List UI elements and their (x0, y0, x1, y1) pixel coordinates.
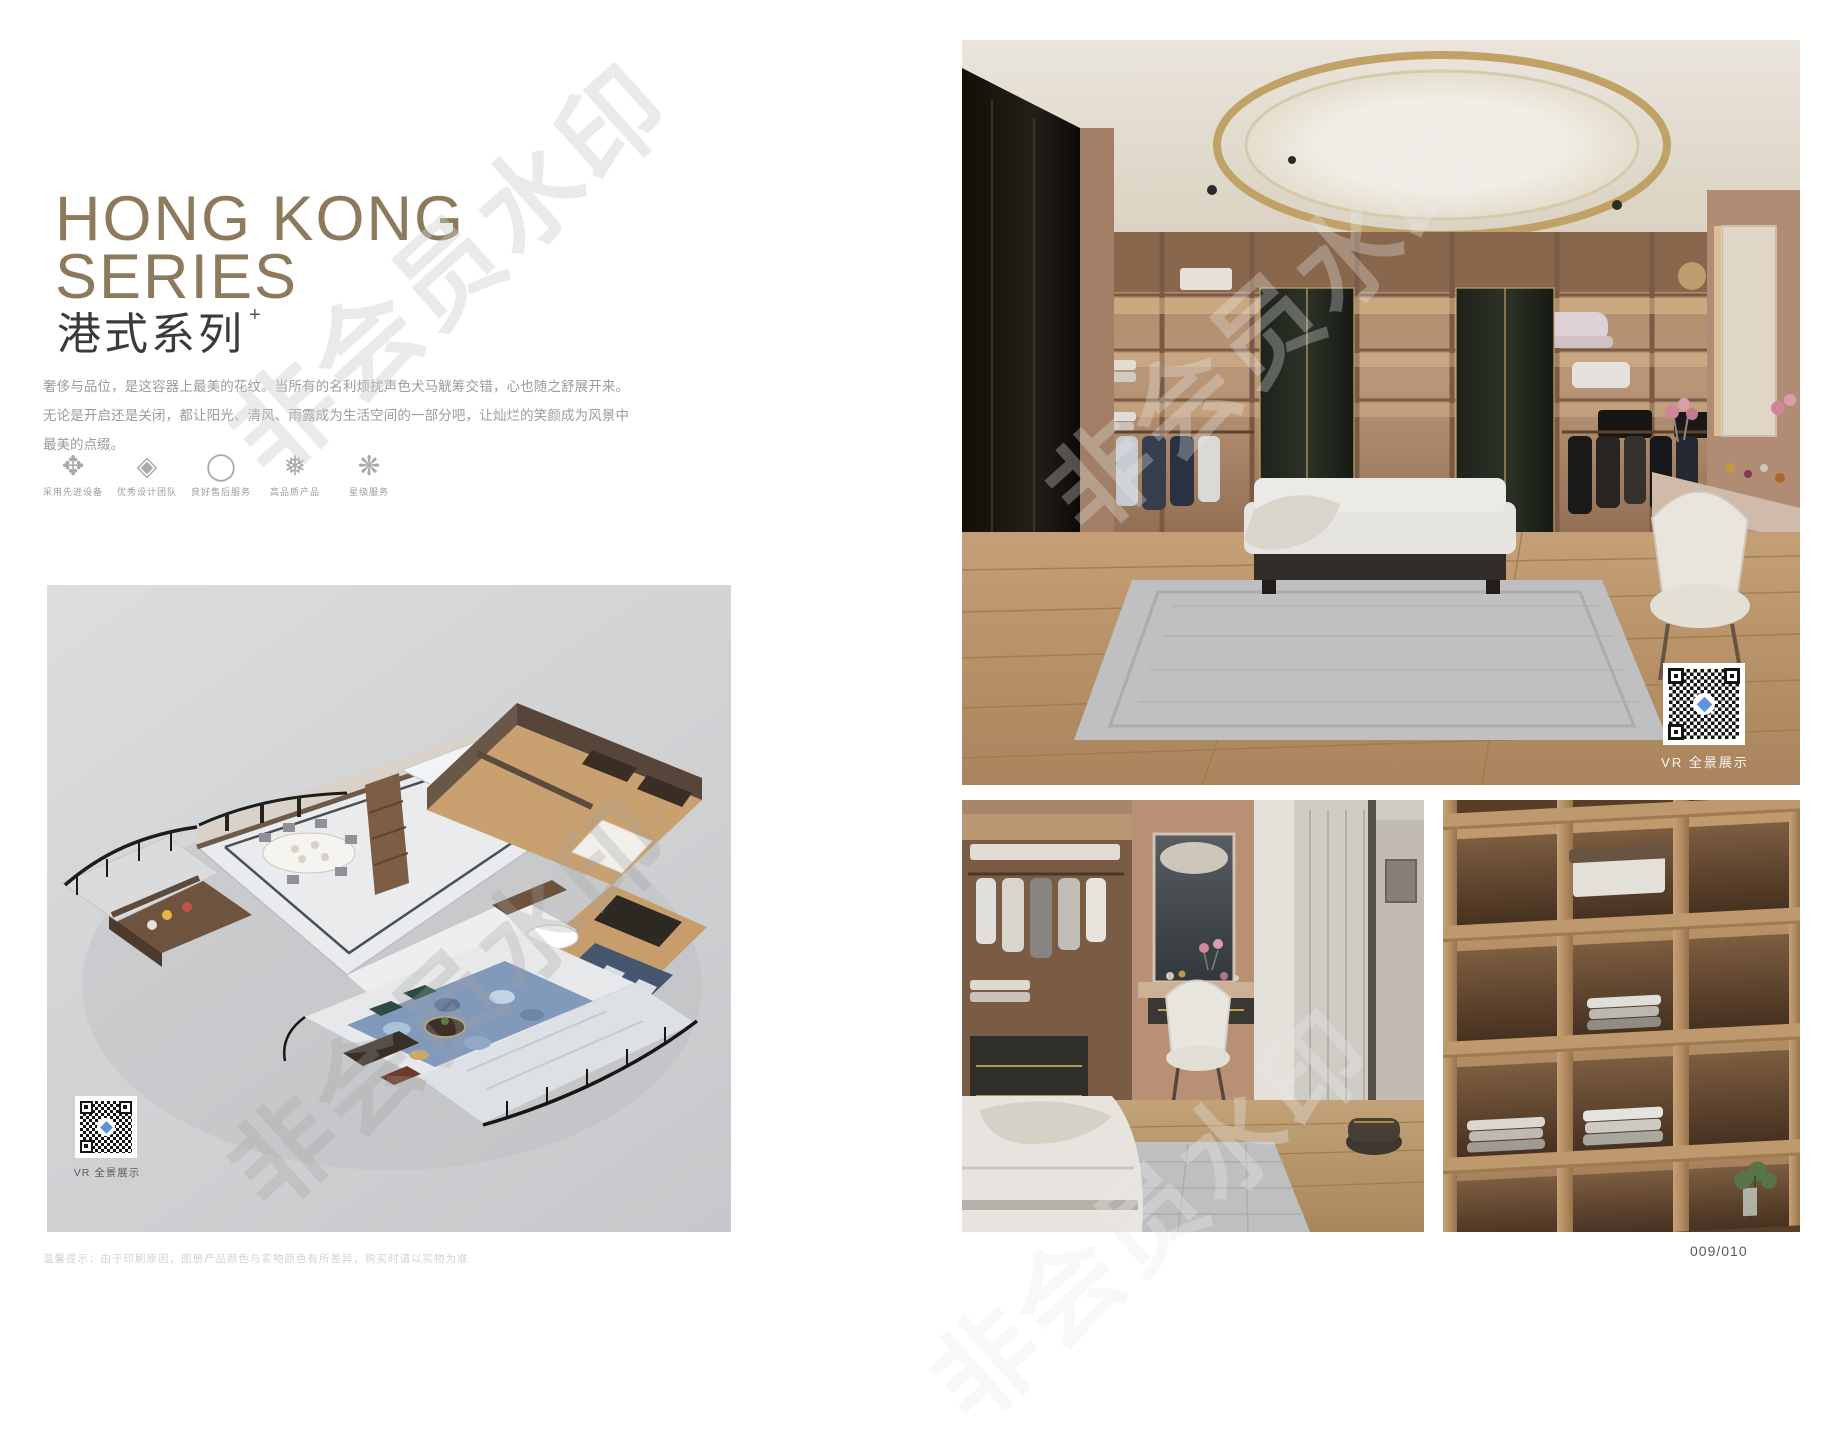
feature-after-sales: ◯ 良好售后服务 (184, 450, 258, 498)
ornate-diamond-icon: ◈ (110, 450, 184, 482)
series-title-en: HONG KONGSERIES (55, 190, 465, 306)
feature-design-team: ◈ 优秀设计团队 (110, 450, 184, 498)
shelf-closeup-image (1443, 800, 1800, 1232)
qr-finder (1668, 724, 1684, 740)
qr-finder-dot (1674, 674, 1678, 678)
qr-finder (1668, 668, 1684, 684)
qr-finder (80, 1140, 93, 1153)
qr-finder-dot (123, 1105, 127, 1109)
print-disclaimer: 温馨提示：由于印刷原因，图册产品颜色与实物颜色有所差异，购买时请以实物为准 (43, 1251, 469, 1266)
qr-finder-dot (84, 1144, 88, 1148)
series-description: 奢侈与品位，是这容器上最美的花纹。当所有的名利烦扰声色犬马觥筹交错，心也随之舒展… (43, 372, 629, 459)
qr-center-logo (97, 1118, 115, 1136)
feature-star-service: ❋ 星级服务 (332, 450, 406, 498)
dressing-area-photo (962, 800, 1424, 1232)
series-title-zh: 港式系列+ (57, 298, 264, 362)
feature-label: 优秀设计团队 (110, 485, 184, 498)
qr-finder-dot (1674, 730, 1678, 734)
qr-finder (1724, 668, 1740, 684)
page-number: 009/010 (1690, 1243, 1748, 1259)
qr-finder-dot (84, 1105, 88, 1109)
vr-qr-code (75, 1096, 137, 1158)
qr-center-logo (1693, 693, 1715, 715)
shelf-closeup-photo (1443, 800, 1800, 1232)
feature-label: 星级服务 (332, 485, 406, 498)
feature-label: 良好售后服务 (184, 485, 258, 498)
vr-qr-code (1663, 663, 1745, 745)
feature-label: 高品质产品 (258, 485, 332, 498)
feature-label: 采用先进设备 (36, 485, 110, 498)
vr-panorama-label: VR 全景展示 (61, 1165, 153, 1180)
brush-ring-icon: ◯ (184, 450, 258, 482)
feature-advanced-equipment: ✥ 采用先进设备 (36, 450, 110, 498)
dressing-area-image (962, 800, 1424, 1232)
plus-mark: + (249, 304, 264, 326)
cube-logo-icon (100, 1121, 113, 1134)
subtitle-text: 港式系列 (57, 310, 245, 359)
isometric-floorplan-image (47, 585, 731, 1232)
cube-logo-icon (1696, 696, 1712, 712)
title-line-1: HONG KONG (55, 190, 465, 248)
vr-panorama-label: VR 全景展示 (1650, 752, 1760, 771)
qr-finder (119, 1101, 132, 1114)
floorplan-render: VR 全景展示 (47, 585, 731, 1232)
qr-finder-dot (1730, 674, 1734, 678)
walkin-closet-photo: VR 全景展示 (962, 40, 1800, 785)
qr-finder (80, 1101, 93, 1114)
pinwheel-flower-icon: ✥ (36, 450, 110, 482)
feature-list: ✥ 采用先进设备 ◈ 优秀设计团队 ◯ 良好售后服务 ❅ 高品质产品 ❋ 星级服… (36, 450, 406, 498)
feature-high-quality: ❅ 高品质产品 (258, 450, 332, 498)
star-flake-icon: ❋ (332, 450, 406, 482)
snowflake-icon: ❅ (258, 450, 332, 482)
